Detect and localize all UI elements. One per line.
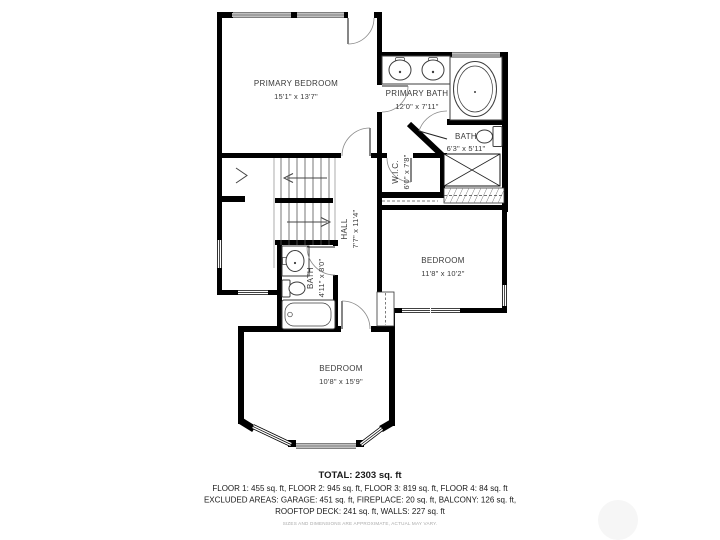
area-summary: TOTAL: 2303 sq. ft FLOOR 1: 455 sq. ft, … xyxy=(204,470,516,526)
utility-closet xyxy=(444,154,500,186)
floor-areas-text: FLOOR 1: 455 sq. ft, FLOOR 2: 945 sq. ft… xyxy=(212,484,508,493)
floorplan-canvas: PRIMARY BEDROOM 15'1" x 13'7" PRIMARY BA… xyxy=(0,0,720,540)
bay-window xyxy=(361,429,382,445)
room-dims-bedroom-right: 11'8" x 10'2" xyxy=(421,269,464,278)
disclaimer-text: SIZES AND DIMENSIONS ARE APPROXIMATE, AC… xyxy=(283,521,438,526)
stair-chevron xyxy=(236,168,247,183)
bathtub-icon xyxy=(282,300,335,329)
room-label-bath-hall: BATH xyxy=(306,267,315,289)
hall-bath-vanity xyxy=(282,246,309,276)
total-area-text: TOTAL: 2303 sq. ft xyxy=(318,470,402,481)
watermark-logo xyxy=(598,500,638,540)
room-dims-hall: 7'7" x 11'4" xyxy=(351,209,360,248)
room-label-bedroom-bottom: BEDROOM xyxy=(319,364,362,373)
door-swing xyxy=(342,301,370,329)
room-dims-bath-upper: 6'3" x 5'11" xyxy=(447,144,486,153)
room-label-bath-upper: BATH xyxy=(455,132,477,141)
primary-bath-vanity xyxy=(382,56,450,84)
room-label-primary-bath: PRIMARY BATH xyxy=(386,89,449,98)
bedroom-closet xyxy=(377,292,394,326)
diagonal-wall xyxy=(409,124,444,157)
toilet-icon xyxy=(282,280,305,297)
door-swing xyxy=(342,128,370,156)
room-label-primary-bedroom: PRIMARY BEDROOM xyxy=(254,79,338,88)
soaking-tub xyxy=(450,57,502,120)
room-dims-bath-hall: 4'11" x 8'0" xyxy=(317,258,326,297)
excluded-areas-text-2: ROOFTOP DECK: 241 sq. ft, WALLS: 227 sq.… xyxy=(275,507,445,516)
excluded-areas-text: EXCLUDED AREAS: GARAGE: 451 sq. ft, FIRE… xyxy=(204,496,516,505)
room-label-wic: W.I.C. xyxy=(391,160,400,184)
room-dims-primary-bath: 12'0" x 7'11" xyxy=(395,102,438,111)
room-label-hall: HALL xyxy=(340,218,349,239)
room-dims-bedroom-bottom: 10'8" x 15'9" xyxy=(319,377,363,386)
door-swing xyxy=(348,18,374,44)
room-dims-primary-bedroom: 15'1" x 13'7" xyxy=(274,92,318,101)
room-dims-wic: 6'0" x 7'8" xyxy=(402,154,411,189)
room-label-bedroom-right: BEDROOM xyxy=(421,256,464,265)
reach-in-closet xyxy=(444,188,504,203)
bay-window xyxy=(253,427,291,445)
